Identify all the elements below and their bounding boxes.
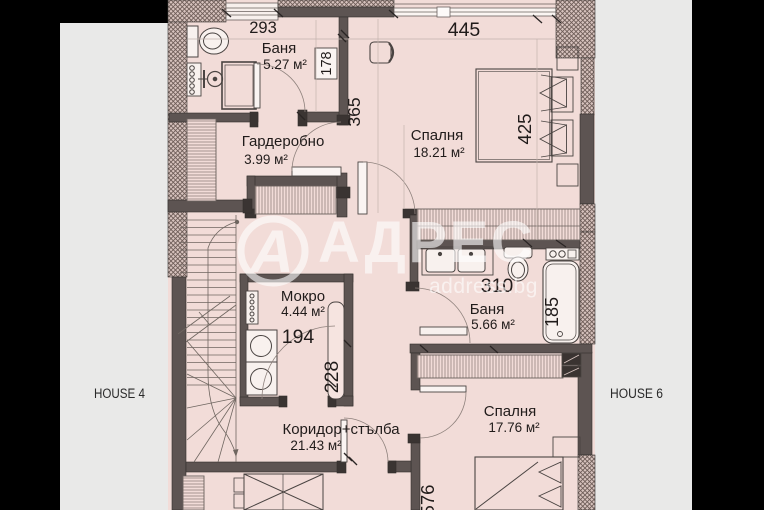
svg-text:194: 194 [282, 326, 315, 348]
svg-text:5.66 м²: 5.66 м² [471, 317, 515, 332]
svg-text:А: А [248, 218, 293, 285]
svg-text:185: 185 [542, 297, 562, 327]
svg-text:Мокро: Мокро [281, 288, 325, 305]
svg-text:АДРЕС: АДРЕС [318, 210, 535, 275]
svg-text:Коридор+стълба: Коридор+стълба [282, 421, 400, 438]
svg-text:3.99 м²: 3.99 м² [244, 152, 288, 167]
svg-text:5.27 м²: 5.27 м² [263, 57, 307, 72]
svg-text:445: 445 [448, 19, 481, 41]
svg-text:HOUSE 6: HOUSE 6 [610, 386, 663, 401]
svg-text:425: 425 [514, 114, 535, 145]
svg-text:365: 365 [344, 97, 364, 126]
svg-text:293: 293 [249, 19, 277, 37]
svg-text:Баня: Баня [470, 301, 505, 318]
svg-text:21.43 м²: 21.43 м² [290, 438, 342, 453]
svg-text:Баня: Баня [262, 40, 297, 57]
svg-text:Спалня: Спалня [411, 127, 463, 144]
svg-text:17.76 м²: 17.76 м² [488, 420, 540, 435]
svg-text:576: 576 [417, 485, 438, 510]
svg-text:18.21 м²: 18.21 м² [413, 145, 465, 160]
svg-text:Гардеробно: Гардеробно [242, 133, 325, 150]
svg-text:Спалня: Спалня [484, 403, 536, 420]
svg-text:address.bg: address.bg [429, 275, 538, 298]
svg-text:228: 228 [321, 361, 343, 394]
svg-text:178: 178 [319, 51, 335, 75]
svg-text:HOUSE 4: HOUSE 4 [94, 386, 145, 401]
svg-text:4.44 м²: 4.44 м² [281, 304, 325, 319]
